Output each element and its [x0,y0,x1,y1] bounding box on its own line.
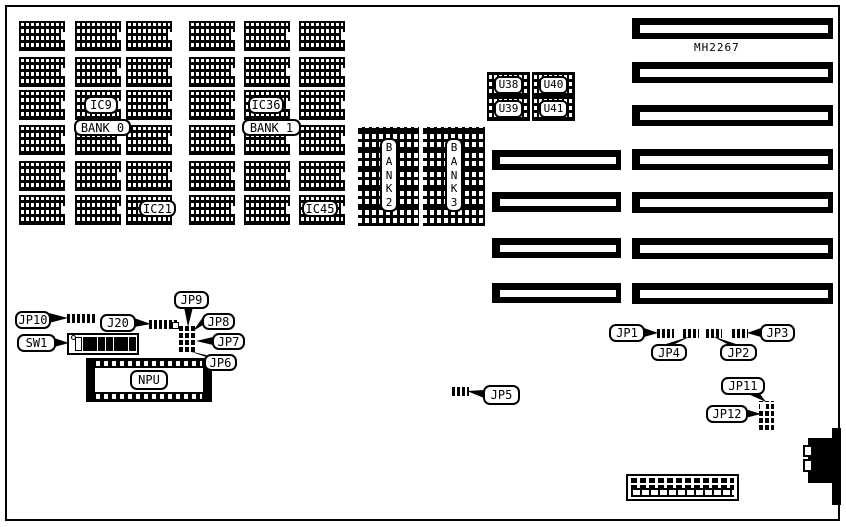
callout-jp11: JP11 [721,377,765,395]
dip-switch-lever-4 [98,337,105,351]
slot-short-3 [492,238,621,258]
jumper-header-jp3 [732,329,748,338]
connector-pins-row [631,488,734,497]
simm-label-bank2: B A N K 2 [380,138,398,212]
label-ic36: IC36 [248,96,284,114]
jumper-header-jp10 [67,314,95,323]
pin-block-tag-jp6-jp9 [172,322,179,329]
memory-chip [75,21,121,51]
label-ic21: IC21 [139,200,176,217]
connector-clips-row [631,478,734,483]
slot-long-2 [632,62,833,83]
callout-jp12: JP12 [706,405,748,423]
simm-label-bank3: B A N K 3 [445,138,463,212]
slot-short-4 [492,283,621,303]
memory-chip [19,57,65,87]
npu-pin-row-bottom [96,394,202,399]
keyboard-connector-notch-2 [803,459,813,472]
callout-jp2: JP2 [720,344,757,361]
npu-label: NPU [130,370,168,390]
memory-chip [189,125,235,155]
memory-chip [299,125,345,155]
pin-block-jp6-jp9 [179,325,197,352]
chip-u41: U41 [532,97,575,121]
dip-switch-lever-5 [106,337,113,351]
memory-chip [189,161,235,191]
chip-u40: U40 [532,72,575,97]
memory-chip [126,57,172,87]
memory-chip [126,90,172,120]
slot-long-7 [632,283,833,304]
memory-chip [75,195,121,225]
callout-jp5: JP5 [483,385,520,405]
npu-socket: NPU [86,358,212,402]
memory-chip [189,57,235,87]
dip-switch-lever-2 [83,337,90,351]
jumper-header-jp4 [683,329,699,338]
slot-long-6 [632,238,833,259]
label-ic9: IC9 [84,96,118,114]
memory-chip [126,161,172,191]
callout-jp10: JP10 [15,311,51,329]
memory-chip [126,125,172,155]
motherboard-diagram: MH2267 IC9BANK 0IC36BANK 1IC21IC45B A N … [0,0,846,527]
memory-chip [19,90,65,120]
memory-chip [19,125,65,155]
memory-chip [299,161,345,191]
jumper-header-jp2 [706,329,722,338]
callout-jp1: JP1 [609,324,645,342]
dip-switch-lever-8 [129,337,136,351]
dip-switch-lever-6 [114,337,121,351]
memory-chip [244,57,290,87]
callout-j20: J20 [100,314,136,332]
power-connector [626,474,739,501]
callout-jp7: JP7 [212,333,245,350]
part-number-label: MH2267 [694,41,740,54]
dip-switch-lever-1 [75,337,82,351]
slot-short-1 [492,150,621,170]
chip-label-u41: U41 [539,100,569,118]
memory-chip [189,90,235,120]
callout-jp8: JP8 [202,313,235,330]
dip-switch-lever-7 [121,337,128,351]
slot-short-2 [492,192,621,212]
label-ic45: IC45 [302,200,338,217]
memory-chip [126,21,172,51]
jumper-header-jp5 [452,387,469,396]
callout-jp9: JP9 [174,291,209,309]
memory-chip [19,195,65,225]
label-bank1: BANK 1 [242,119,301,136]
slot-long-4 [632,149,833,170]
memory-chip [19,161,65,191]
memory-chip [299,57,345,87]
chip-u39: U39 [487,97,530,121]
slot-long-1 [632,18,833,39]
memory-chip [19,21,65,51]
slot-long-3 [632,105,833,126]
chip-label-u39: U39 [494,100,524,118]
memory-chip [189,195,235,225]
memory-chip [244,195,290,225]
memory-chip [75,161,121,191]
keyboard-connector-notch-1 [803,445,813,457]
npu-pin-row-top [96,361,202,366]
callout-sw1: SW1 [17,334,56,352]
chip-label-u40: U40 [539,76,569,94]
memory-chip [75,57,121,87]
callout-jp6: JP6 [204,354,237,371]
callout-jp4: JP4 [651,344,687,361]
memory-chip [299,90,345,120]
dip-switch-lever-3 [90,337,97,351]
chip-label-u38: U38 [494,76,524,94]
chip-u38: U38 [487,72,530,97]
label-bank0: BANK 0 [74,119,131,136]
slot-long-5 [632,192,833,213]
memory-chip [244,21,290,51]
memory-chip [189,21,235,51]
pin-block-open-cell-jp11-jp12 [760,403,766,410]
memory-chip [299,21,345,51]
callout-jp3: JP3 [760,324,795,342]
memory-chip [244,161,290,191]
jumper-header-jp1 [657,329,674,338]
